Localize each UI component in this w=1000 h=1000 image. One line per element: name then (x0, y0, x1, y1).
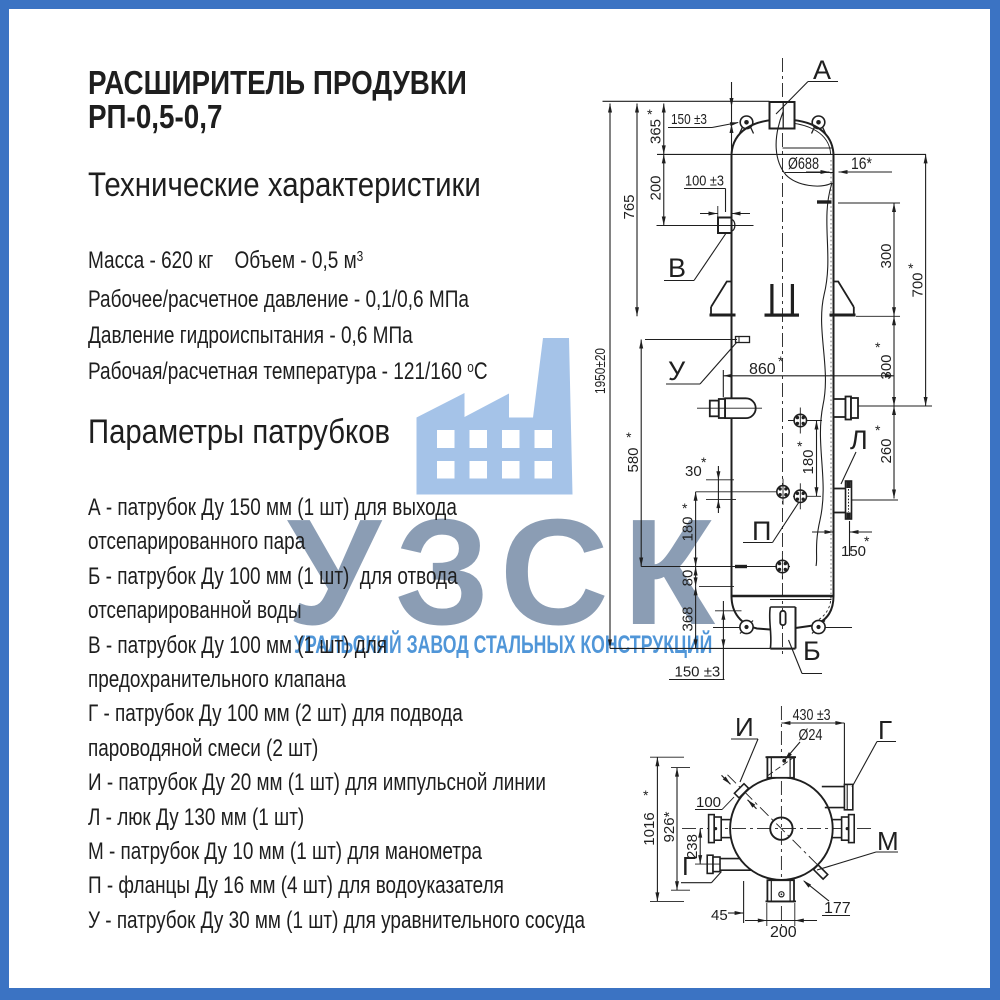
svg-text:*: * (797, 438, 803, 454)
svg-text:368: 368 (680, 606, 697, 631)
svg-text:150: 150 (841, 543, 866, 560)
svg-text:580: 580 (625, 447, 642, 472)
svg-text:100: 100 (696, 794, 721, 811)
svg-text:200: 200 (770, 924, 797, 941)
svg-text:*: * (643, 787, 649, 803)
svg-text:180: 180 (800, 449, 817, 474)
svg-text:Л: Л (850, 425, 868, 455)
svg-text:1950±20: 1950±20 (592, 348, 609, 394)
svg-text:У: У (668, 356, 686, 386)
svg-text:И: И (735, 712, 754, 742)
svg-text:*: * (778, 353, 784, 369)
svg-text:100 ±3: 100 ±3 (685, 173, 724, 190)
svg-text:Ø688: Ø688 (788, 154, 819, 173)
svg-text:*: * (864, 533, 870, 549)
svg-text:765: 765 (621, 194, 638, 219)
svg-text:А: А (813, 55, 831, 85)
svg-text:*: * (682, 500, 688, 516)
svg-text:177: 177 (824, 900, 851, 917)
svg-text:П: П (752, 516, 771, 546)
svg-text:150 ±3: 150 ±3 (675, 664, 721, 681)
svg-text:В: В (668, 253, 686, 283)
svg-text:Ø24: Ø24 (799, 727, 823, 744)
svg-text:*: * (908, 260, 914, 276)
svg-text:300: 300 (878, 354, 895, 379)
svg-text:*: * (875, 339, 881, 355)
svg-text:150 ±3: 150 ±3 (671, 111, 707, 128)
svg-text:Б: Б (803, 636, 821, 666)
svg-text:260: 260 (878, 438, 895, 463)
svg-text:180: 180 (680, 516, 697, 541)
svg-text:80: 80 (680, 570, 697, 587)
svg-text:16*: 16* (851, 154, 872, 173)
svg-text:926*: 926* (661, 811, 678, 842)
svg-text:700: 700 (910, 272, 927, 297)
svg-text:*: * (875, 422, 881, 438)
svg-text:300: 300 (878, 243, 895, 268)
svg-text:430 ±3: 430 ±3 (793, 707, 831, 724)
svg-text:200: 200 (648, 175, 665, 200)
svg-text:Г: Г (682, 851, 696, 881)
svg-text:*: * (701, 454, 707, 470)
svg-text:365: 365 (648, 119, 665, 144)
svg-text:860: 860 (749, 361, 776, 378)
svg-text:45: 45 (711, 907, 728, 924)
svg-text:*: * (626, 429, 632, 445)
svg-text:*: * (647, 106, 653, 122)
svg-text:30: 30 (685, 463, 702, 480)
svg-text:1016: 1016 (641, 812, 658, 845)
svg-text:Г: Г (878, 715, 892, 745)
